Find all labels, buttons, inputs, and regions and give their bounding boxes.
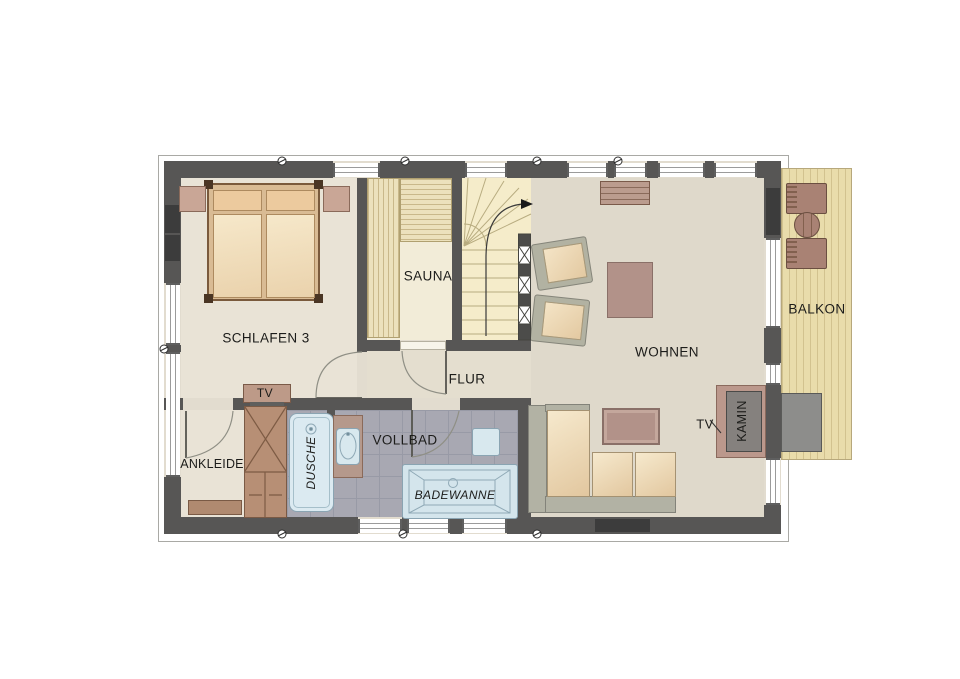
fixture-label-kamin: KAMIN xyxy=(735,400,749,442)
stairs-direction-arrow xyxy=(521,199,533,209)
door-arc xyxy=(186,411,233,458)
plan-linework xyxy=(0,0,960,679)
room-label-dusche: DUSCHE xyxy=(304,436,318,489)
fixture-label-tv-schlafen: TV xyxy=(257,386,273,400)
wardrobe-marks xyxy=(245,407,286,517)
room-label-flur: FLUR xyxy=(449,372,486,387)
room-label-sauna: SAUNA xyxy=(404,269,453,284)
floor-plan: SCHLAFEN 3 SAUNA FLUR WOHNEN BALKON ANKL… xyxy=(0,0,960,679)
door-arc xyxy=(402,351,446,394)
room-label-ankleide: ANKLEIDE xyxy=(180,457,243,471)
room-label-vollbad: VOLLBAD xyxy=(372,433,437,448)
shower-head-icon xyxy=(306,424,316,434)
door-arc xyxy=(316,352,362,398)
wall-marker-icon xyxy=(160,157,622,538)
fixture-label-tv-wohnen: TV xyxy=(696,417,713,432)
sink-basin-icon xyxy=(340,433,356,460)
stair-railing xyxy=(519,234,531,340)
room-label-wohnen: WOHNEN xyxy=(635,345,699,360)
fixture-label-badewanne: BADEWANNE xyxy=(415,488,496,502)
room-label-schlafen3: SCHLAFEN 3 xyxy=(222,331,309,346)
room-label-balkon: BALKON xyxy=(788,302,845,317)
